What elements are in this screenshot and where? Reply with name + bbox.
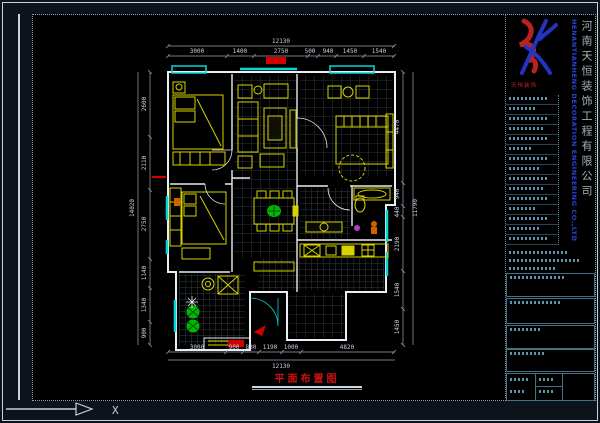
svg-text:2110: 2110 xyxy=(141,155,148,170)
svg-text:3000: 3000 xyxy=(190,48,205,55)
revision-table xyxy=(506,95,559,245)
dim-left-total: 14020 xyxy=(129,199,136,217)
svg-text:940: 940 xyxy=(323,48,334,55)
notes-box-1 xyxy=(506,325,595,349)
svg-text:1450: 1450 xyxy=(343,48,358,55)
svg-text:900: 900 xyxy=(229,344,240,351)
entry-arrow xyxy=(254,325,266,336)
axis-arrow-icon xyxy=(76,403,92,415)
svg-text:940: 940 xyxy=(394,188,401,199)
notes-box-2 xyxy=(506,349,595,372)
company-logo-icon xyxy=(508,17,558,79)
svg-text:4820: 4820 xyxy=(340,344,355,351)
logo-caption: 天恒装饰 xyxy=(511,81,537,89)
svg-text:2750: 2750 xyxy=(141,216,148,231)
svg-text:1190: 1190 xyxy=(263,344,278,351)
svg-text:500: 500 xyxy=(305,48,316,55)
svg-text:3000: 3000 xyxy=(190,344,205,351)
svg-text:1340: 1340 xyxy=(141,297,148,312)
svg-text:1400: 1400 xyxy=(233,48,248,55)
dim-right-total: 11790 xyxy=(412,199,419,217)
svg-text:440: 440 xyxy=(394,206,401,217)
svg-text:1540: 1540 xyxy=(372,48,387,55)
figure-marker xyxy=(371,221,377,227)
svg-text:1140: 1140 xyxy=(141,265,148,280)
purple-fixture xyxy=(354,225,360,231)
drawing-title-text: 平面布置图 xyxy=(252,374,362,385)
project-name-box xyxy=(506,273,595,297)
svg-text:1540: 1540 xyxy=(394,282,401,297)
company-name-cn: 河南天恒装饰工程有限公司 xyxy=(578,20,594,250)
drawing-title: 平面布置图 xyxy=(252,374,362,390)
sheet-info-grid xyxy=(506,373,595,401)
dim-top-total: 12130 xyxy=(272,38,290,45)
svg-text:830: 830 xyxy=(246,344,257,351)
svg-text:900: 900 xyxy=(141,327,148,338)
svg-text:1450: 1450 xyxy=(394,319,401,334)
drawing-name-box xyxy=(506,298,595,324)
svg-text:4470: 4470 xyxy=(394,119,401,134)
title-block: 天恒装饰 河南天恒装饰工程有限公司 HENANTIANHENG DECORATI… xyxy=(505,15,595,398)
svg-text:2600: 2600 xyxy=(141,96,148,111)
cad-viewport: 12130 3000 1400 2750 500 940 1450 1540 3… xyxy=(0,0,600,423)
svg-text:2190: 2190 xyxy=(394,236,401,251)
title-underline xyxy=(252,386,362,388)
ucs-axis-icon: X xyxy=(0,398,150,422)
svg-text:2750: 2750 xyxy=(274,48,289,55)
title-underline-thin xyxy=(252,389,362,390)
axis-x-label: X xyxy=(112,404,119,417)
red-beam-marker xyxy=(266,57,286,64)
svg-text:1000: 1000 xyxy=(284,344,299,351)
dim-bottom-total: 12130 xyxy=(272,363,290,370)
